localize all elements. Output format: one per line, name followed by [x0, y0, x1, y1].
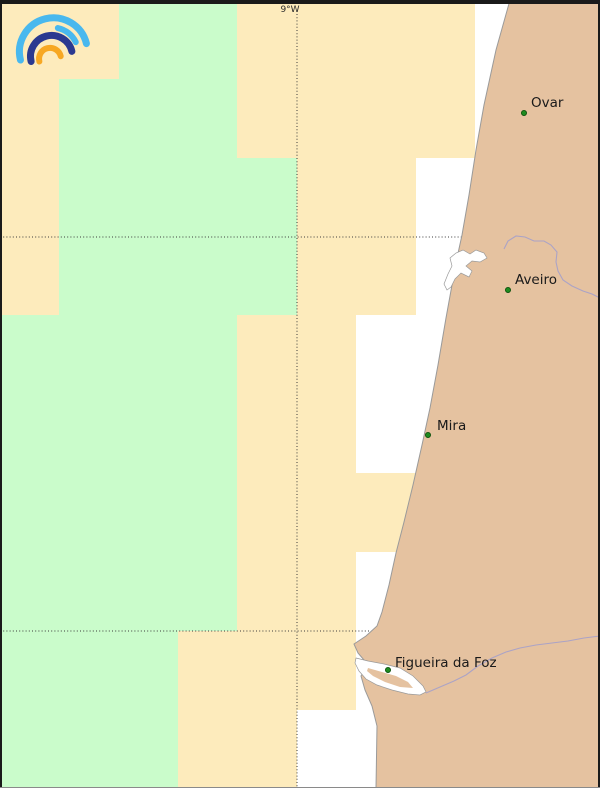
- grid-cell: [0, 631, 59, 710]
- grid-cell: [297, 631, 356, 710]
- weather-grid-map: OvarAveiroMiraFigueira da Foz 9°W: [0, 0, 600, 788]
- grid-cell: [59, 79, 119, 158]
- grid-cell: [178, 552, 237, 631]
- grid-cell: [237, 710, 297, 788]
- city-label-ovar: Ovar: [531, 95, 564, 111]
- city-label-mira: Mira: [437, 418, 466, 434]
- grid-cell: [178, 394, 237, 473]
- grid-cell: [119, 79, 178, 158]
- grid-cell: [297, 315, 356, 394]
- border-left: [0, 0, 2, 788]
- grid-cell: [297, 158, 356, 237]
- grid-cell: [237, 631, 297, 710]
- grid-cell: [356, 237, 416, 315]
- grid-cell: [237, 237, 297, 315]
- grid-cell: [356, 158, 416, 237]
- grid-cell: [237, 552, 297, 631]
- grid-cell: [178, 710, 237, 788]
- grid-cell: [59, 710, 119, 788]
- grid-cell: [119, 710, 178, 788]
- grid-cell: [59, 158, 119, 237]
- grid-cell: [297, 394, 356, 473]
- grid-cell: [297, 0, 356, 79]
- grid-cell: [178, 631, 237, 710]
- grid-cell: [59, 473, 119, 552]
- grid-cell: [59, 315, 119, 394]
- grid-cell: [178, 0, 237, 79]
- grid-cell: [178, 79, 237, 158]
- city-marker-mira: [425, 432, 430, 437]
- grid-cell: [178, 315, 237, 394]
- grid-cell: [119, 0, 178, 79]
- grid-cell: [297, 552, 356, 631]
- grid-cell: [0, 0, 59, 79]
- grid-cell: [237, 158, 297, 237]
- grid-cell: [297, 237, 356, 315]
- city-figueira-da-foz: Figueira da Foz: [385, 655, 496, 673]
- grid-cell: [119, 394, 178, 473]
- border-top: [0, 0, 600, 4]
- grid-cell: [0, 79, 59, 158]
- grid-cell: [356, 79, 416, 158]
- grid-cell: [0, 552, 59, 631]
- grid-cell: [237, 394, 297, 473]
- grid-cell: [178, 473, 237, 552]
- grid-cell: [416, 79, 475, 158]
- grid-cell: [237, 473, 297, 552]
- grid-cell: [0, 710, 59, 788]
- grid-cell: [119, 158, 178, 237]
- city-label-aveiro: Aveiro: [515, 272, 557, 288]
- city-marker-aveiro: [505, 287, 510, 292]
- grid-cell: [59, 552, 119, 631]
- grid-cell: [119, 237, 178, 315]
- city-marker-ovar: [521, 110, 526, 115]
- grid-cell: [237, 79, 297, 158]
- city-marker-figueira-da-foz: [385, 667, 390, 672]
- grid-cell: [0, 158, 59, 237]
- grid-cell: [0, 237, 59, 315]
- grid-cell: [416, 0, 475, 79]
- city-label-figueira-da-foz: Figueira da Foz: [395, 655, 497, 671]
- grid-cell: [237, 315, 297, 394]
- grid-cell: [59, 631, 119, 710]
- grid-cell: [119, 631, 178, 710]
- grid-cell: [59, 394, 119, 473]
- map-canvas: OvarAveiroMiraFigueira da Foz 9°W: [0, 0, 600, 788]
- grid-cell: [59, 237, 119, 315]
- grid-cell: [178, 237, 237, 315]
- grid-cell: [297, 473, 356, 552]
- grid-cell: [119, 473, 178, 552]
- grid-cell: [0, 473, 59, 552]
- grid-cell: [178, 158, 237, 237]
- grid-cell: [119, 552, 178, 631]
- grid-cell: [297, 79, 356, 158]
- grid-cell: [356, 0, 416, 79]
- grid-cell: [0, 394, 59, 473]
- grid-cell: [119, 315, 178, 394]
- grid-cell: [0, 315, 59, 394]
- meridian-label: 9°W: [280, 5, 299, 15]
